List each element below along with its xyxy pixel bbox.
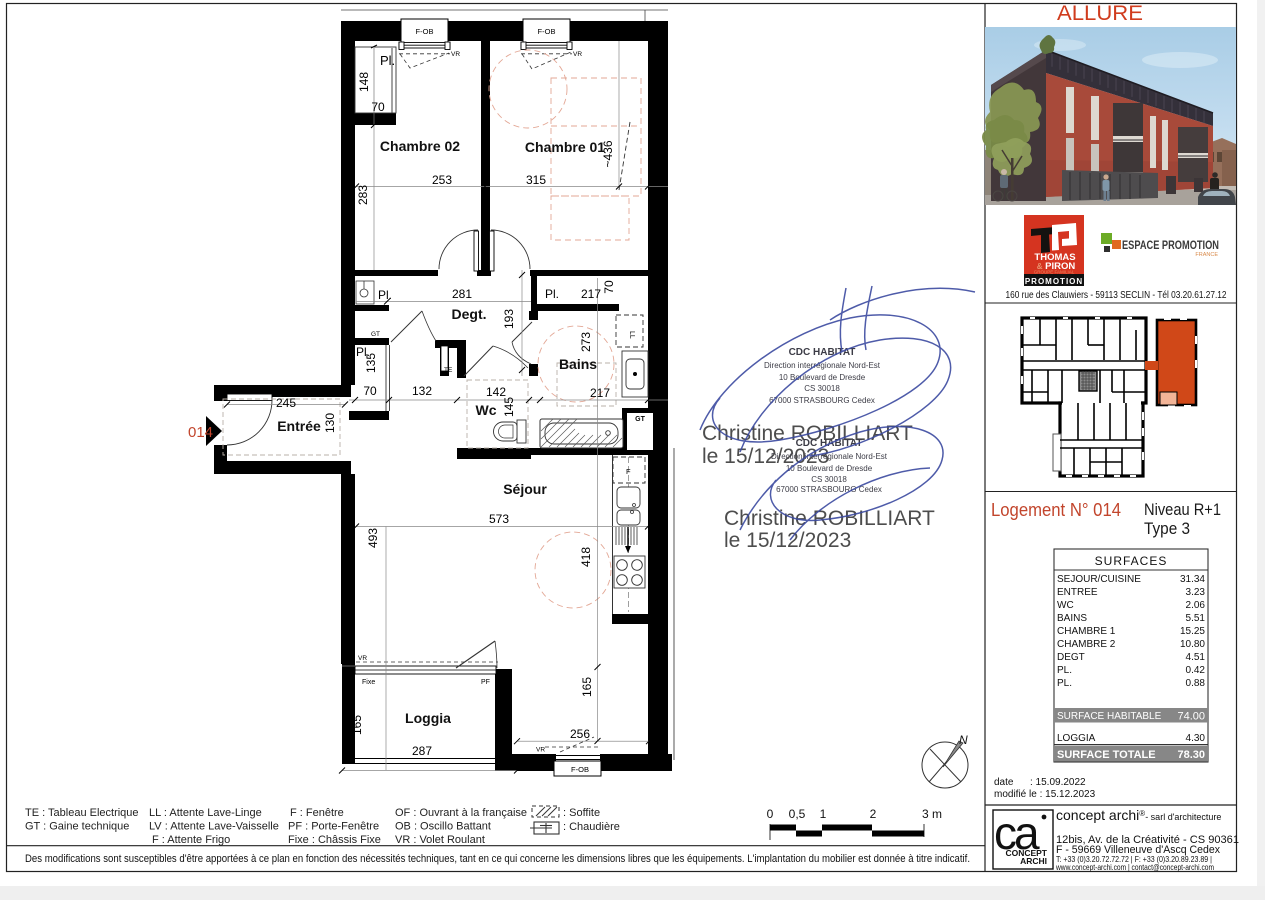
svg-text:ESPACE PROMOTION: ESPACE PROMOTION	[1122, 240, 1219, 252]
svg-text:SURFACES: SURFACES	[1095, 554, 1168, 568]
svg-text:LL : Attente Lave-Linge: LL : Attente Lave-Linge	[149, 807, 262, 819]
svg-text:Wc: Wc	[476, 402, 497, 418]
svg-text:10.80: 10.80	[1180, 639, 1205, 650]
svg-text:256: 256	[570, 727, 590, 741]
svg-text:: Soffite: : Soffite	[563, 807, 600, 819]
svg-text:F-OB: F-OB	[571, 765, 589, 774]
svg-text:F: F	[626, 467, 631, 476]
svg-text:ALLURE: ALLURE	[1057, 2, 1143, 25]
svg-text:283: 283	[356, 185, 370, 205]
svg-text:130: 130	[323, 413, 337, 433]
svg-text:N: N	[959, 733, 968, 747]
svg-text:165: 165	[350, 715, 364, 735]
svg-text:70: 70	[363, 384, 377, 398]
svg-text:Direction interrégionale Nord-: Direction interrégionale Nord-Est	[764, 361, 881, 370]
svg-text:WC: WC	[1057, 600, 1074, 611]
svg-text:132: 132	[412, 384, 432, 398]
svg-text:GT: GT	[371, 331, 380, 338]
svg-text:74.00: 74.00	[1177, 711, 1205, 723]
svg-text:4.51: 4.51	[1186, 652, 1206, 663]
svg-text:217: 217	[590, 386, 610, 400]
svg-text:ENTREE: ENTREE	[1057, 587, 1098, 598]
svg-text:Niveau R+1: Niveau R+1	[1144, 500, 1221, 519]
svg-text:Entrée: Entrée	[277, 418, 321, 434]
svg-text:Logement N° 014: Logement N° 014	[991, 500, 1121, 520]
svg-text:0.42: 0.42	[1186, 665, 1206, 676]
svg-text:VR : Volet Roulant: VR : Volet Roulant	[395, 834, 485, 846]
svg-text:F-OB: F-OB	[416, 27, 434, 36]
svg-text:Pl.: Pl.	[380, 53, 395, 68]
svg-text:CS 30018: CS 30018	[811, 475, 847, 484]
svg-text:0,5: 0,5	[789, 807, 806, 821]
svg-text:15.25: 15.25	[1180, 626, 1205, 637]
svg-text:CHAMBRE 2: CHAMBRE 2	[1057, 639, 1116, 650]
svg-text:Fixe: Fixe	[362, 679, 375, 686]
svg-text:Pl.: Pl.	[378, 288, 392, 302]
svg-text:Pl.: Pl.	[545, 287, 559, 301]
svg-text:ARCHI: ARCHI	[1020, 856, 1047, 866]
svg-text:www.concept-archi.com | contac: www.concept-archi.com | contact@concept-…	[1055, 862, 1214, 872]
svg-text:287: 287	[412, 744, 432, 758]
svg-text:31.34: 31.34	[1180, 574, 1205, 585]
svg-text:LOGGIA: LOGGIA	[1057, 733, 1096, 744]
svg-text:: Chaudière: : Chaudière	[563, 821, 620, 833]
svg-text:Degt.: Degt.	[452, 306, 487, 322]
svg-text:GROUPE FAMILIAL: GROUPE FAMILIAL	[1034, 270, 1075, 275]
svg-text:67000 STRASBOURG Cedex: 67000 STRASBOURG Cedex	[769, 396, 875, 405]
svg-text:4.30: 4.30	[1186, 733, 1206, 744]
svg-text:Chambre 02: Chambre 02	[380, 138, 460, 154]
svg-text:F : Fenêtre: F : Fenêtre	[290, 807, 344, 819]
svg-text:5.51: 5.51	[1186, 613, 1206, 624]
svg-text:LL: LL	[628, 331, 635, 339]
svg-text:F-OB: F-OB	[538, 27, 556, 36]
svg-text:VR: VR	[451, 51, 460, 58]
svg-text:PL.: PL.	[1057, 678, 1072, 689]
svg-text:SURFACE HABITABLE: SURFACE HABITABLE	[1057, 711, 1162, 722]
svg-text:GT : Gaine technique: GT : Gaine technique	[25, 821, 129, 833]
svg-text:014: 014	[188, 424, 213, 441]
svg-text:193: 193	[502, 309, 516, 329]
svg-text:GT: GT	[635, 416, 645, 423]
svg-text:0.88: 0.88	[1186, 678, 1206, 689]
svg-text:78.30: 78.30	[1177, 749, 1205, 761]
svg-text:SEJOUR/CUISINE: SEJOUR/CUISINE	[1057, 574, 1141, 585]
svg-text:Direction interrégionale Nord-: Direction interrégionale Nord-Est	[771, 452, 888, 461]
svg-text:0: 0	[767, 807, 774, 821]
svg-text:LV : Attente Lave-Vaisselle: LV : Attente Lave-Vaisselle	[149, 821, 279, 833]
svg-text:BAINS: BAINS	[1057, 613, 1087, 624]
svg-text:SURFACE TOTALE: SURFACE TOTALE	[1057, 749, 1156, 761]
svg-text:PF: PF	[481, 679, 490, 686]
svg-text:F : Attente Frigo: F : Attente Frigo	[152, 834, 230, 846]
svg-text:160 rue des Clauwiers - 59113: 160 rue des Clauwiers - 59113 SECLIN - T…	[1006, 290, 1227, 301]
svg-text:Fixe : Châssis Fixe: Fixe : Châssis Fixe	[288, 834, 381, 846]
svg-text:217: 217	[581, 287, 601, 301]
svg-text:165: 165	[580, 677, 594, 697]
svg-text:315: 315	[526, 173, 546, 187]
svg-text:245: 245	[276, 396, 296, 410]
svg-text:: 15.09.2022: : 15.09.2022	[1030, 777, 1086, 788]
svg-text:DEGT: DEGT	[1057, 652, 1085, 663]
svg-text:493: 493	[366, 528, 380, 548]
svg-text:TE : Tableau Electrique: TE : Tableau Electrique	[25, 807, 139, 819]
svg-text:10 Boulevard de Dresde: 10 Boulevard de Dresde	[786, 464, 873, 473]
svg-text:Séjour: Séjour	[503, 481, 547, 497]
svg-text:273: 273	[579, 332, 593, 352]
svg-text:281: 281	[452, 287, 472, 301]
svg-text:le 15/12/2023: le 15/12/2023	[724, 529, 851, 552]
svg-text:CDC HABITAT: CDC HABITAT	[789, 347, 856, 358]
svg-text:PROMOTION: PROMOTION	[1025, 277, 1083, 286]
svg-text:573: 573	[489, 512, 509, 526]
svg-text:VR: VR	[573, 51, 582, 58]
svg-text:PF : Porte-Fenêtre: PF : Porte-Fenêtre	[288, 821, 379, 833]
svg-text:Des modifications sont suscept: Des modifications sont susceptibles d'êt…	[25, 853, 970, 865]
svg-text:10 Boulevard de Dresde: 10 Boulevard de Dresde	[779, 373, 866, 382]
svg-text:OB : Oscillo Battant: OB : Oscillo Battant	[395, 821, 491, 833]
svg-text:OF : Ouvrant à la française: OF : Ouvrant à la française	[395, 807, 527, 819]
svg-text:CS 30018: CS 30018	[804, 384, 840, 393]
svg-text:VR: VR	[358, 655, 367, 662]
svg-text:145: 145	[502, 397, 516, 417]
svg-text:148: 148	[357, 72, 371, 92]
svg-text:70: 70	[371, 100, 385, 114]
svg-text:2.06: 2.06	[1186, 600, 1206, 611]
svg-text:PL.: PL.	[1057, 665, 1072, 676]
svg-text:3 m: 3 m	[922, 807, 942, 821]
svg-text:418: 418	[579, 547, 593, 567]
svg-text:FRANCE: FRANCE	[1195, 252, 1218, 258]
svg-text:Chambre 01: Chambre 01	[525, 139, 605, 155]
svg-text:70: 70	[602, 280, 616, 294]
svg-text:3.23: 3.23	[1186, 587, 1206, 598]
svg-text:Pl.: Pl.	[356, 345, 370, 359]
svg-text:modifié le : 15.12.2023: modifié le : 15.12.2023	[994, 789, 1096, 800]
svg-text:CHAMBRE 1: CHAMBRE 1	[1057, 626, 1116, 637]
svg-text:142: 142	[486, 385, 506, 399]
svg-text:Bains: Bains	[559, 356, 597, 372]
svg-text:date: date	[994, 777, 1014, 788]
svg-text:VR: VR	[536, 747, 545, 754]
svg-text:67000 STRASBOURG Cedex: 67000 STRASBOURG Cedex	[776, 485, 882, 494]
svg-text:Loggia: Loggia	[405, 710, 451, 726]
svg-text:2: 2	[870, 807, 877, 821]
svg-text:TE: TE	[444, 367, 453, 374]
svg-text:253: 253	[432, 173, 452, 187]
svg-text:Type 3: Type 3	[1144, 519, 1190, 538]
svg-text:1: 1	[820, 807, 827, 821]
